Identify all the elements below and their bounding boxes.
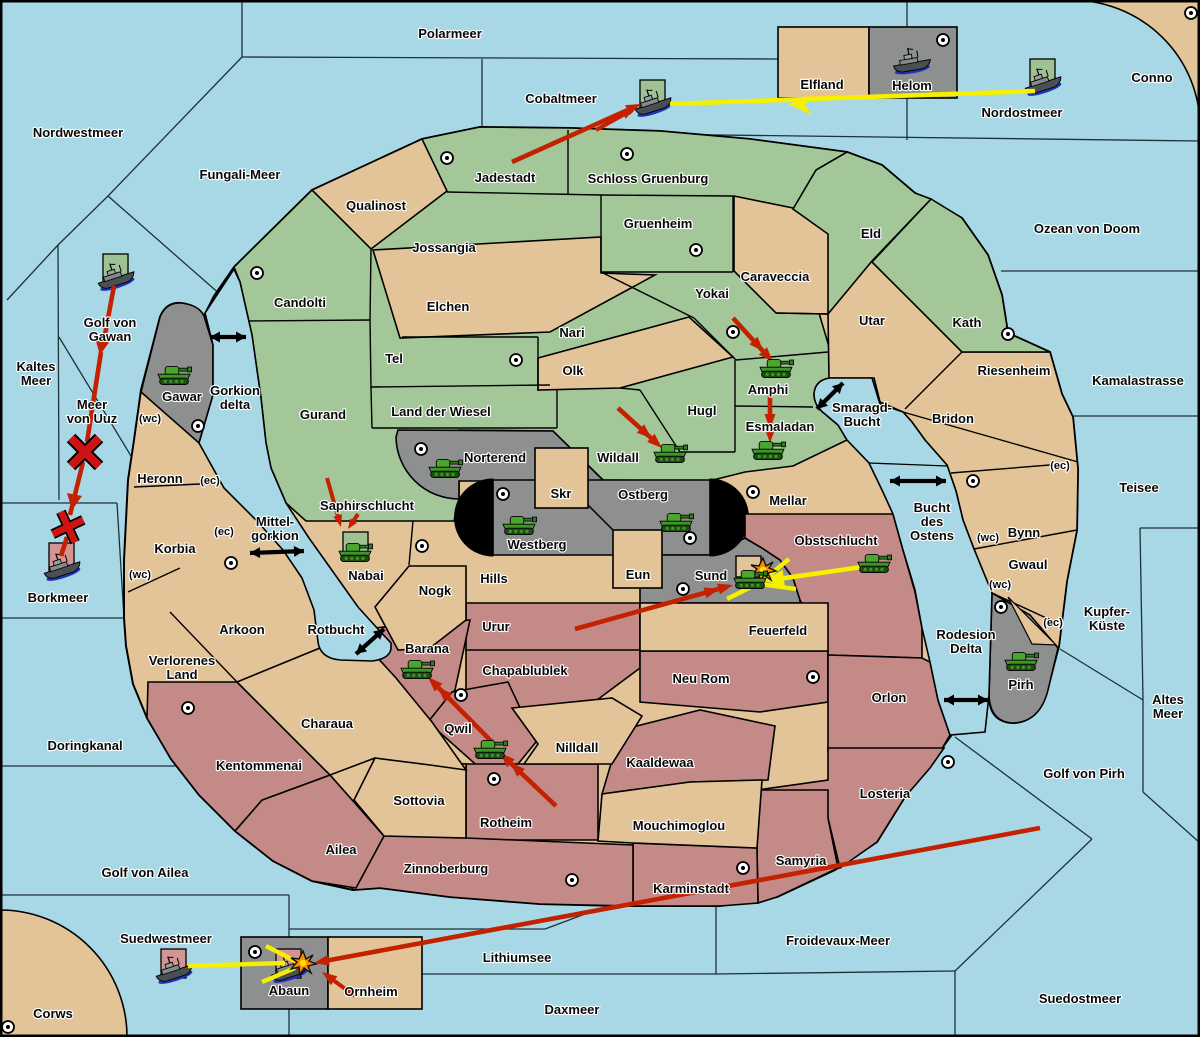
svg-text:Gawar: Gawar [162, 389, 202, 404]
svg-text:(wc): (wc) [139, 413, 161, 425]
svg-text:Saphirschlucht: Saphirschlucht [320, 498, 415, 513]
svg-text:Polarmeer: Polarmeer [418, 26, 482, 41]
svg-text:Eld: Eld [861, 226, 881, 241]
svg-text:Eun: Eun [626, 567, 651, 582]
svg-text:Fungali-Meer: Fungali-Meer [200, 167, 281, 182]
svg-text:Mittel-gorkion: Mittel-gorkion [251, 514, 299, 543]
svg-text:Land der Wiesel: Land der Wiesel [391, 404, 491, 419]
svg-text:Orlon: Orlon [872, 690, 907, 705]
svg-text:Losteria: Losteria [860, 786, 911, 801]
svg-text:Elchen: Elchen [427, 299, 470, 314]
svg-text:Ornheim: Ornheim [344, 984, 397, 999]
svg-text:Sottovia: Sottovia [393, 793, 445, 808]
svg-text:Nogk: Nogk [419, 583, 452, 598]
svg-text:Kupfer-Küste: Kupfer-Küste [1084, 604, 1130, 633]
svg-text:Westberg: Westberg [508, 537, 567, 552]
svg-text:Feuerfeld: Feuerfeld [749, 623, 808, 638]
svg-text:Schloss Gruenburg: Schloss Gruenburg [588, 171, 709, 186]
svg-text:(ec): (ec) [1043, 617, 1063, 629]
svg-text:Riesenheim: Riesenheim [978, 363, 1051, 378]
svg-text:Conno: Conno [1131, 70, 1172, 85]
svg-text:Skr: Skr [551, 486, 572, 501]
svg-text:Esmaladan: Esmaladan [746, 419, 815, 434]
svg-text:Obstschlucht: Obstschlucht [794, 533, 878, 548]
svg-text:KaltesMeer: KaltesMeer [16, 359, 55, 388]
svg-text:Suedostmeer: Suedostmeer [1039, 991, 1121, 1006]
svg-text:Zinnoberburg: Zinnoberburg [404, 861, 489, 876]
svg-text:Kentommenai: Kentommenai [216, 758, 302, 773]
svg-text:Rotheim: Rotheim [480, 815, 532, 830]
svg-text:Ostberg: Ostberg [618, 487, 668, 502]
svg-text:Candolti: Candolti [274, 295, 326, 310]
svg-text:Arkoon: Arkoon [219, 622, 265, 637]
svg-text:Barana: Barana [405, 641, 450, 656]
svg-text:Hugl: Hugl [688, 403, 717, 418]
svg-text:Mouchimoglou: Mouchimoglou [633, 818, 725, 833]
svg-text:Olk: Olk [563, 363, 585, 378]
svg-text:Heronn: Heronn [137, 471, 183, 486]
svg-text:Pirh: Pirh [1008, 677, 1033, 692]
svg-text:Nari: Nari [559, 325, 584, 340]
svg-text:Utar: Utar [859, 313, 885, 328]
svg-text:(ec): (ec) [200, 475, 220, 487]
svg-text:Cobaltmeer: Cobaltmeer [525, 91, 597, 106]
svg-text:Qwil: Qwil [444, 721, 471, 736]
svg-text:Teisee: Teisee [1119, 480, 1159, 495]
svg-text:Sund: Sund [695, 568, 728, 583]
svg-text:Suedwestmeer: Suedwestmeer [120, 931, 212, 946]
svg-text:Gruenheim: Gruenheim [624, 216, 693, 231]
svg-text:Kaaldewaa: Kaaldewaa [626, 755, 694, 770]
svg-text:Bridon: Bridon [932, 411, 974, 426]
svg-text:Abaun: Abaun [269, 983, 310, 998]
svg-text:Charaua: Charaua [301, 716, 354, 731]
svg-text:Jadestadt: Jadestadt [475, 170, 536, 185]
svg-text:Mellar: Mellar [769, 493, 807, 508]
svg-text:Hills: Hills [480, 571, 507, 586]
svg-text:Neu Rom: Neu Rom [672, 671, 729, 686]
svg-text:Samyria: Samyria [776, 853, 827, 868]
svg-text:Qualinost: Qualinost [346, 198, 407, 213]
svg-text:Nabai: Nabai [348, 568, 383, 583]
svg-text:AltesMeer: AltesMeer [1152, 692, 1184, 721]
svg-text:Kamalastrasse: Kamalastrasse [1092, 373, 1184, 388]
svg-text:Korbia: Korbia [154, 541, 196, 556]
svg-text:Helom: Helom [892, 78, 932, 93]
svg-text:Jossangia: Jossangia [412, 240, 476, 255]
svg-text:Daxmeer: Daxmeer [545, 1002, 600, 1017]
svg-text:Tel: Tel [385, 351, 403, 366]
svg-text:Yokai: Yokai [695, 286, 729, 301]
svg-text:Norterend: Norterend [464, 450, 526, 465]
svg-text:(ec): (ec) [214, 526, 234, 538]
svg-text:Karminstadt: Karminstadt [653, 881, 730, 896]
svg-text:Doringkanal: Doringkanal [47, 738, 122, 753]
svg-text:Nordwestmeer: Nordwestmeer [33, 125, 123, 140]
svg-text:Wildall: Wildall [597, 450, 639, 465]
svg-text:(wc): (wc) [977, 532, 999, 544]
svg-text:Froidevaux-Meer: Froidevaux-Meer [786, 933, 890, 948]
svg-text:Nordostmeer: Nordostmeer [982, 105, 1063, 120]
svg-text:Golf vonGawan: Golf vonGawan [84, 315, 137, 344]
svg-text:Borkmeer: Borkmeer [28, 590, 89, 605]
svg-text:Corws: Corws [33, 1006, 73, 1021]
svg-text:Golf von Pirh: Golf von Pirh [1043, 766, 1125, 781]
svg-text:Chapablublek: Chapablublek [482, 663, 568, 678]
svg-text:Bynn: Bynn [1008, 525, 1041, 540]
svg-text:Gurand: Gurand [300, 407, 346, 422]
svg-text:Lithiumsee: Lithiumsee [483, 950, 552, 965]
svg-text:Caraveccia: Caraveccia [741, 269, 810, 284]
svg-text:Golf von Ailea: Golf von Ailea [102, 865, 190, 880]
svg-text:Ozean von Doom: Ozean von Doom [1034, 221, 1140, 236]
svg-text:Kath: Kath [953, 315, 982, 330]
svg-text:(wc): (wc) [989, 579, 1011, 591]
svg-text:Nilldall: Nilldall [556, 740, 599, 755]
svg-text:Amphi: Amphi [748, 382, 788, 397]
svg-text:(wc): (wc) [129, 569, 151, 581]
svg-text:Elfland: Elfland [800, 77, 843, 92]
svg-text:Rotbucht: Rotbucht [307, 622, 365, 637]
svg-text:Ailea: Ailea [325, 842, 357, 857]
svg-text:Gwaul: Gwaul [1008, 557, 1047, 572]
svg-text:(ec): (ec) [1050, 460, 1070, 472]
svg-text:Urur: Urur [482, 619, 509, 634]
